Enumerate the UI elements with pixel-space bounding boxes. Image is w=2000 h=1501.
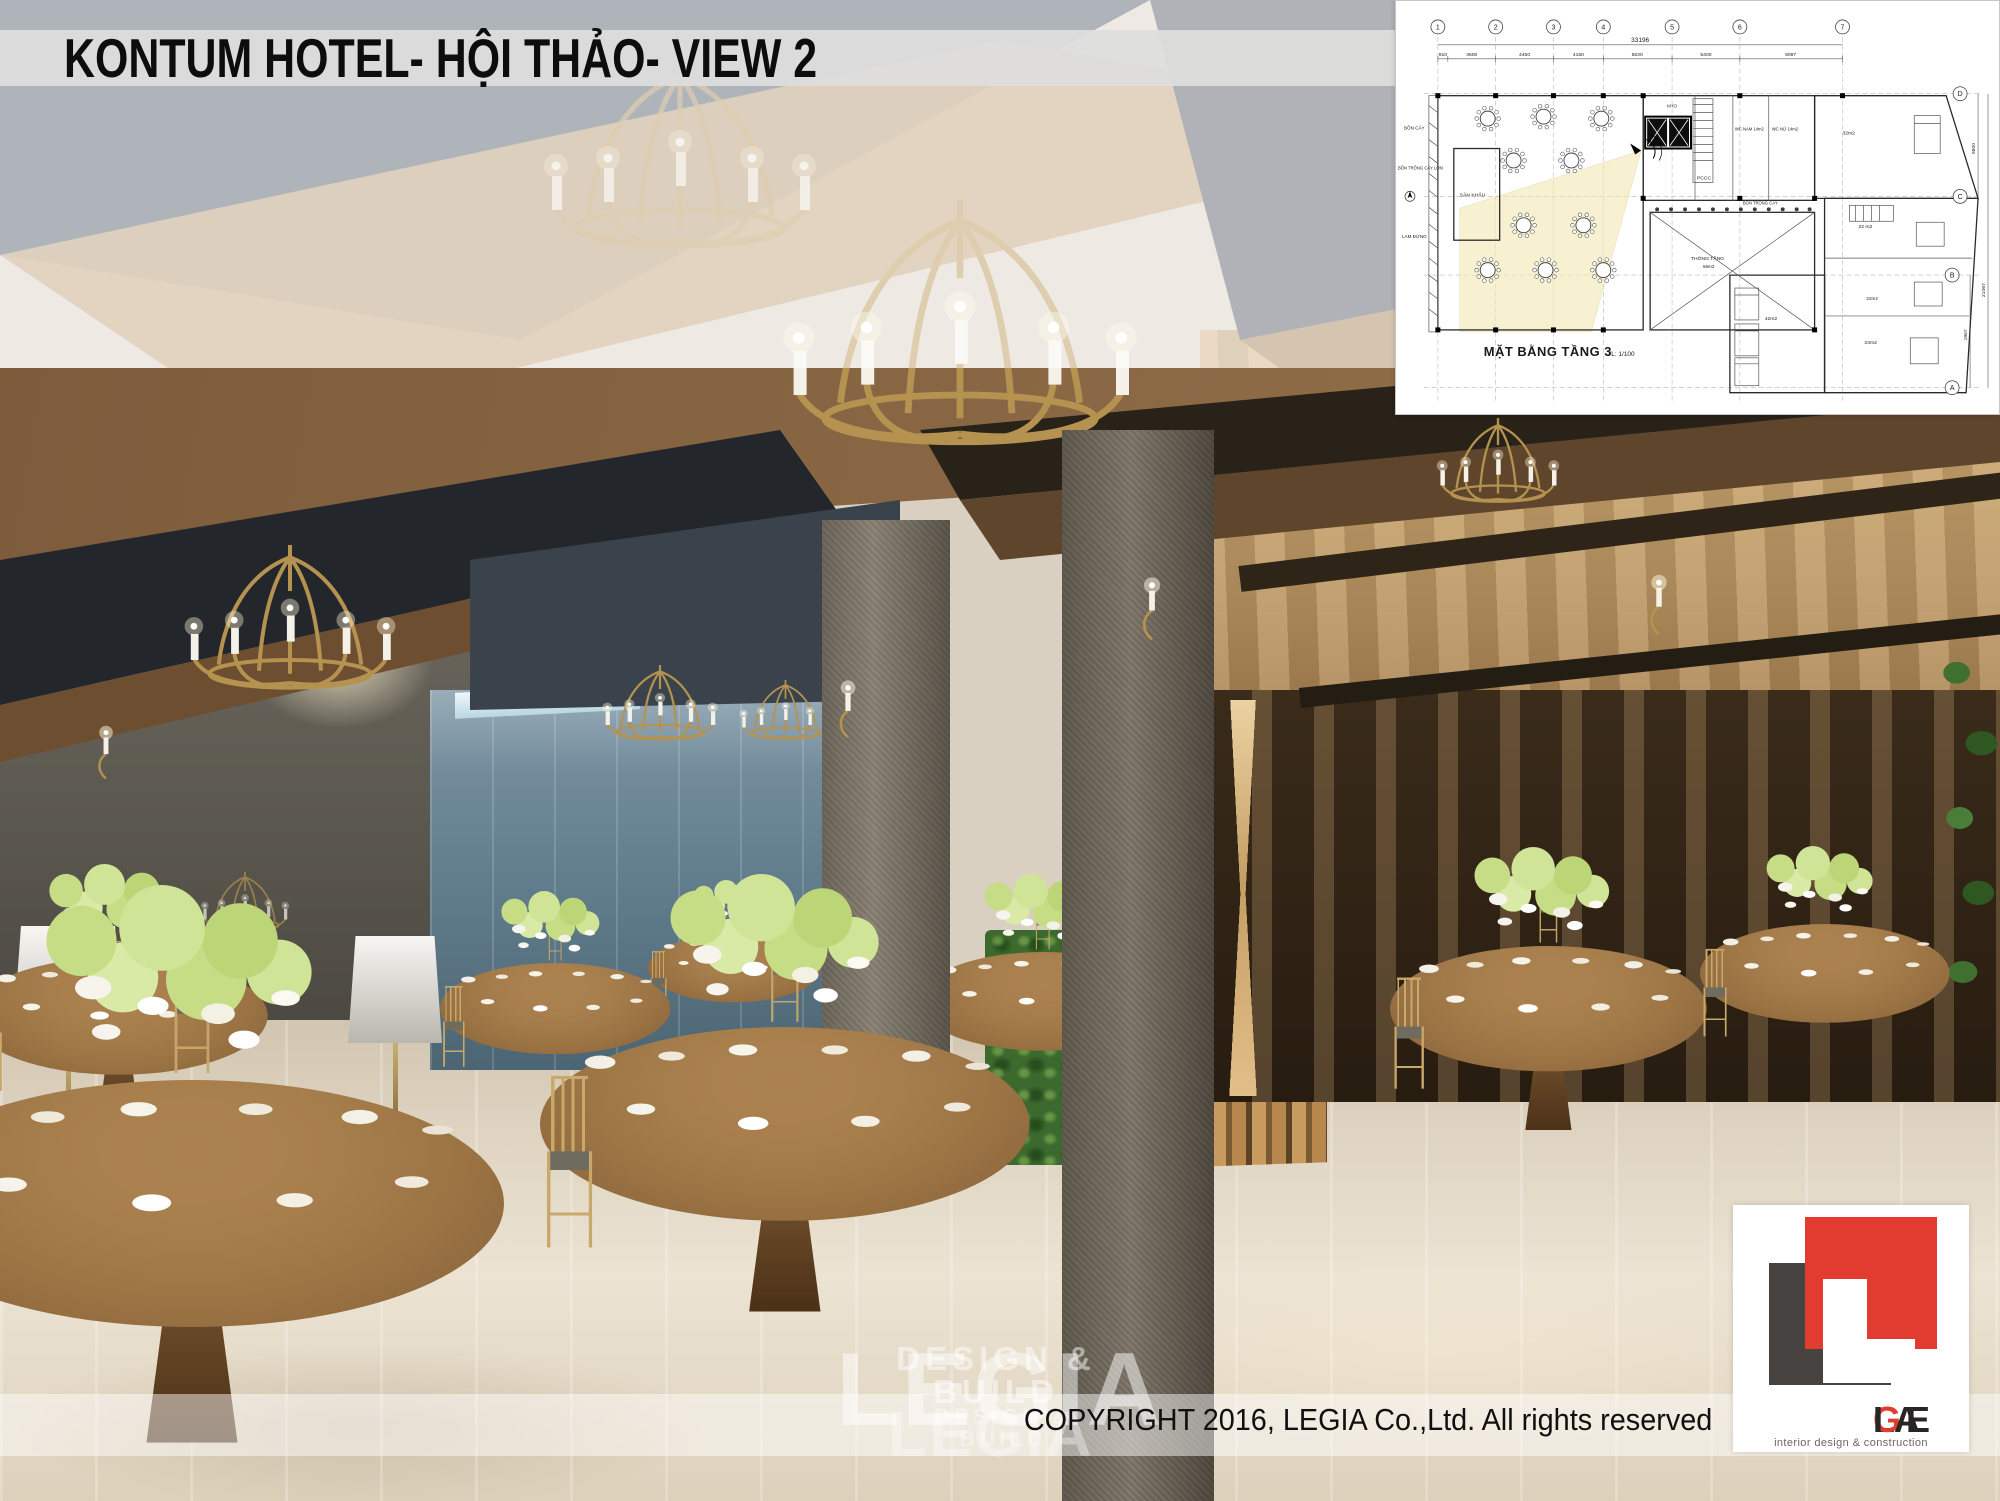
presentation-slide: LEGIA DESIGN & BUILD LEGIA DESIGN & BUIL…	[0, 0, 2000, 1501]
svg-text:PCCC: PCCC	[1697, 175, 1711, 181]
svg-text:THÔNG TẦNG: THÔNG TẦNG	[1691, 255, 1724, 262]
flower-centerpiece	[1474, 851, 1626, 943]
slide-title: KONTUM HOTEL- HỘI THẢO- VIEW 2	[64, 30, 817, 86]
table-pedestal	[1525, 1067, 1571, 1130]
plan-scale-note: TL: 1/100	[1607, 351, 1635, 358]
banquet-table-cluster	[1700, 872, 1950, 1044]
svg-text:32m2: 32m2	[1843, 131, 1856, 137]
plan-dim: 5630	[1632, 52, 1643, 58]
round-table	[0, 1080, 504, 1327]
plan-dim: 3600	[1466, 52, 1477, 58]
candle-sconce	[1128, 568, 1176, 660]
copyright-text: COPYRIGHT 2016, LEGIA Co.,Ltd. All right…	[1024, 1402, 1712, 1438]
plan-dim: 4450	[1519, 52, 1530, 58]
banquet-table-cluster	[540, 925, 1030, 1262]
chandelier	[1408, 418, 1588, 553]
plan-dim: 8097	[1785, 52, 1796, 58]
camera-view-cone	[1460, 151, 1641, 332]
place-settings	[1707, 929, 1942, 1017]
plan-dim: 910	[1439, 52, 1448, 58]
place-settings	[554, 1037, 1015, 1210]
floor-plan-inset: 33196 910 3600 4450 4150 5630 5400 8097 …	[1395, 0, 2000, 415]
banquet-table-cluster	[1390, 880, 1707, 1098]
svg-text:A: A	[1950, 385, 1955, 392]
flower-centerpiece	[671, 880, 906, 1023]
plan-title: MẶT BẰNG TẦNG 3	[1484, 344, 1612, 359]
flower-centerpiece	[1767, 849, 1887, 922]
chair	[1394, 978, 1424, 1089]
svg-text:2: 2	[1494, 24, 1498, 31]
legia-logo-tagline: interior design & construction	[1733, 1437, 1969, 1449]
svg-text:5: 5	[1670, 24, 1674, 31]
svg-text:1: 1	[1436, 24, 1440, 31]
plan-dim-total: 33196	[1631, 37, 1649, 44]
svg-text:C: C	[1958, 194, 1963, 201]
place-settings	[0, 1093, 486, 1314]
svg-text:WC NAM 14m2: WC NAM 14m2	[1735, 127, 1765, 132]
chair	[546, 1076, 593, 1247]
north-arrow-icon	[1405, 191, 1415, 201]
svg-text:22m2: 22m2	[1866, 296, 1878, 301]
chandelier	[135, 545, 445, 775]
legia-logo-box: LEGIA interior design & construction	[1733, 1205, 1969, 1452]
plan-dim: 21067	[1981, 283, 1987, 297]
svg-text:WC NỮ 14m2: WC NỮ 14m2	[1772, 127, 1799, 132]
flower-centerpiece	[46, 893, 345, 1075]
svg-text:4: 4	[1601, 24, 1605, 31]
round-table	[1390, 946, 1707, 1071]
plan-dim: 4150	[1573, 52, 1584, 58]
logo-white-l-horizontal	[1823, 1339, 1915, 1383]
svg-text:7: 7	[1841, 24, 1845, 31]
svg-text:SÂN KHẤU: SÂN KHẤU	[1460, 191, 1486, 198]
svg-text:LAM ĐỨNG: LAM ĐỨNG	[1402, 233, 1427, 239]
svg-text:B: B	[1950, 273, 1955, 280]
logo-letters: IA	[1862, 1399, 1931, 1441]
round-table	[540, 1027, 1030, 1221]
banquet-table-cluster	[0, 950, 504, 1379]
candle-sconce	[1636, 566, 1682, 654]
plan-dim: 5800	[1971, 143, 1977, 154]
svg-text:56m2: 56m2	[1703, 264, 1715, 269]
svg-text:23m2: 23m2	[1864, 340, 1877, 346]
place-settings	[1399, 953, 1697, 1065]
candle-sconce	[826, 672, 870, 756]
svg-text:22 m2: 22 m2	[1858, 224, 1872, 230]
candle-sconce	[86, 718, 126, 796]
chair	[1703, 949, 1727, 1036]
svg-text:3: 3	[1552, 24, 1556, 31]
round-table	[1700, 924, 1950, 1023]
floor-plan-drawing: 33196 910 3600 4450 4150 5630 5400 8097 …	[1396, 1, 1999, 415]
plan-dim: 1967	[1963, 329, 1969, 340]
svg-text:BỒN TRỒNG CÂY LỚN: BỒN TRỒNG CÂY LỚN	[1398, 165, 1443, 170]
svg-text:BỒN TRỒNG CÂY: BỒN TRỒNG CÂY	[1743, 200, 1778, 205]
svg-text:42m2: 42m2	[1765, 316, 1778, 322]
svg-text:6: 6	[1738, 24, 1742, 31]
planter-row	[1655, 207, 1811, 211]
plan-dim: 5400	[1700, 52, 1711, 58]
svg-text:BỒN CÂY: BỒN CÂY	[1404, 125, 1425, 131]
table-pedestal	[749, 1215, 820, 1312]
svg-text:D: D	[1958, 91, 1963, 98]
legia-logo-mark	[1769, 1217, 1935, 1389]
svg-text:KHO: KHO	[1667, 104, 1677, 109]
